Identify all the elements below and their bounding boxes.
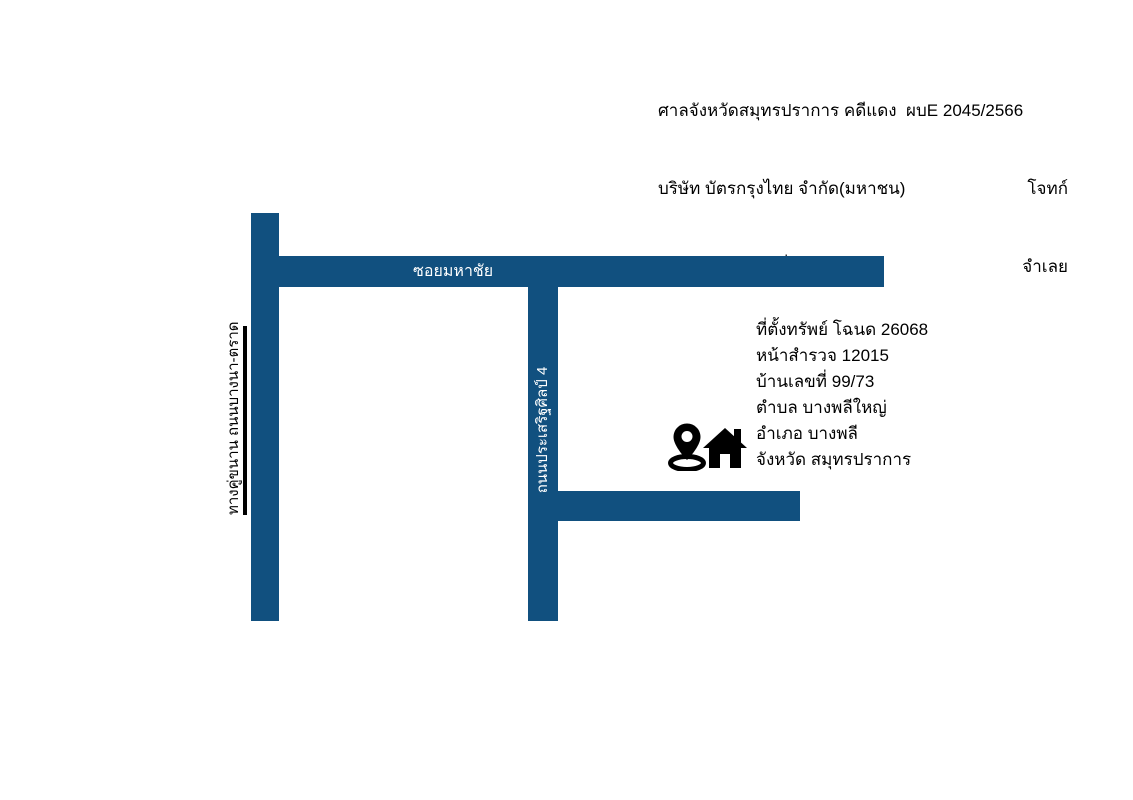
property-line-district: อำเภอ บางพลี	[756, 421, 928, 447]
road-soi-mahachai	[279, 256, 884, 287]
property-line-house-no: บ้านเลขที่ 99/73	[756, 369, 928, 395]
court-map-document: ศาลจังหวัดสมุทรปราการ คดีแดง ผบE 2045/25…	[0, 0, 1133, 800]
road-branch	[558, 491, 800, 521]
property-line-deed: ที่ตั้งทรัพย์ โฉนด 26068	[756, 317, 928, 343]
house-icon	[703, 427, 747, 469]
court-case-line: ศาลจังหวัดสมุทรปราการ คดีแดง ผบE 2045/25…	[658, 98, 1068, 124]
plaintiff-row: บริษัท บัตรกรุงไทย จำกัด(มหาชน) โจทก์	[658, 176, 1068, 202]
property-details: ที่ตั้งทรัพย์ โฉนด 26068 หน้าสำรวจ 12015…	[756, 317, 928, 473]
road-bangna-frontage	[251, 213, 279, 621]
property-line-province: จังหวัด สมุทรปราการ	[756, 447, 928, 473]
case-header: ศาลจังหวัดสมุทรปราการ คดีแดง ผบE 2045/25…	[658, 46, 1068, 332]
defendant-role: จำเลย	[1022, 254, 1068, 280]
road-label-bangna-frontage: ทางคู่ขนาน ถนนบางนา-ตราด	[224, 325, 244, 515]
road-label-soi-mahachai: ซอยมหาชัย	[413, 256, 493, 287]
plaintiff-role: โจทก์	[1027, 176, 1068, 202]
property-line-subdistrict: ตำบล บางพลีใหญ่	[756, 395, 928, 421]
plaintiff-name: บริษัท บัตรกรุงไทย จำกัด(มหาชน)	[658, 176, 905, 202]
property-line-survey: หน้าสำรวจ 12015	[756, 343, 928, 369]
road-label-prasert-silp-4: ถนนประเสริฐศิลป์ 4	[533, 360, 553, 500]
